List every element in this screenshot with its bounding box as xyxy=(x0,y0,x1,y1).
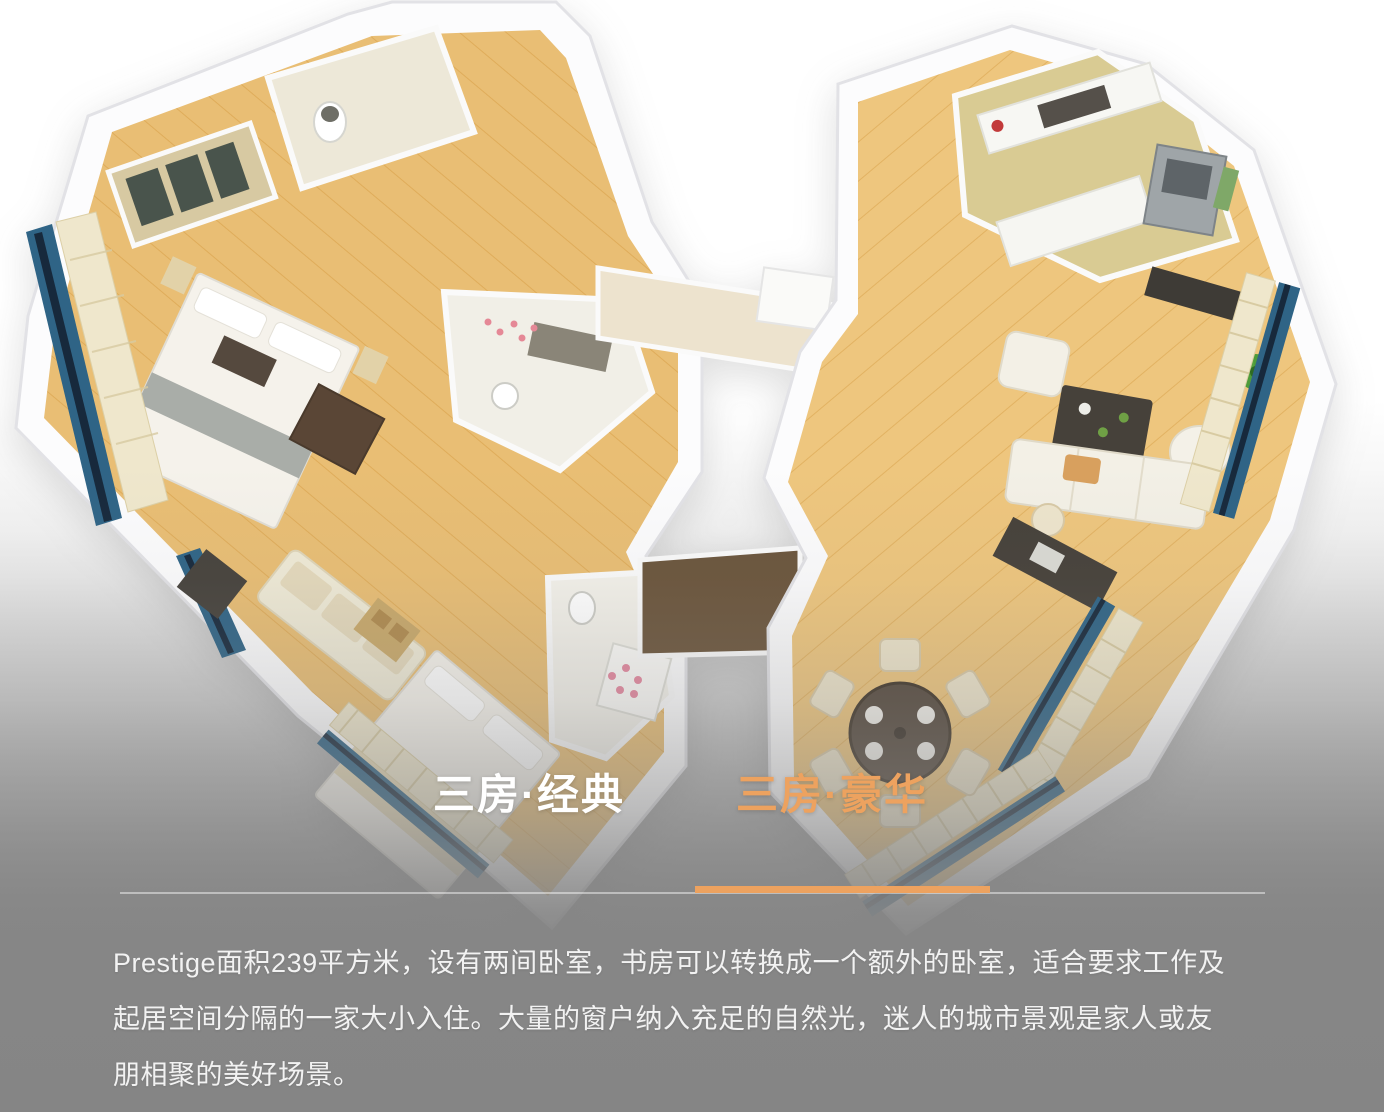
apartment-plan-page: 三房·经典 三房·豪华 Prestige面积239平方米，设有两间卧室，书房可以… xyxy=(0,0,1384,1112)
tab-three-room-deluxe[interactable]: 三房·豪华 xyxy=(736,774,928,816)
description-line: 朋相聚的美好场景。 xyxy=(113,1047,1313,1103)
description-line: Prestige面积239平方米，设有两间卧室，书房可以转换成一个额外的卧室，适… xyxy=(113,935,1313,991)
divider-line xyxy=(120,892,1265,894)
description-line: 起居空间分隔的一家大小入住。大量的窗户纳入充足的自然光，迷人的城市景观是家人或友 xyxy=(113,991,1313,1047)
description-text: Prestige面积239平方米，设有两间卧室，书房可以转换成一个额外的卧室，适… xyxy=(113,935,1313,1103)
active-tab-underline xyxy=(695,886,990,893)
tab-three-room-classic[interactable]: 三房·经典 xyxy=(433,774,625,816)
